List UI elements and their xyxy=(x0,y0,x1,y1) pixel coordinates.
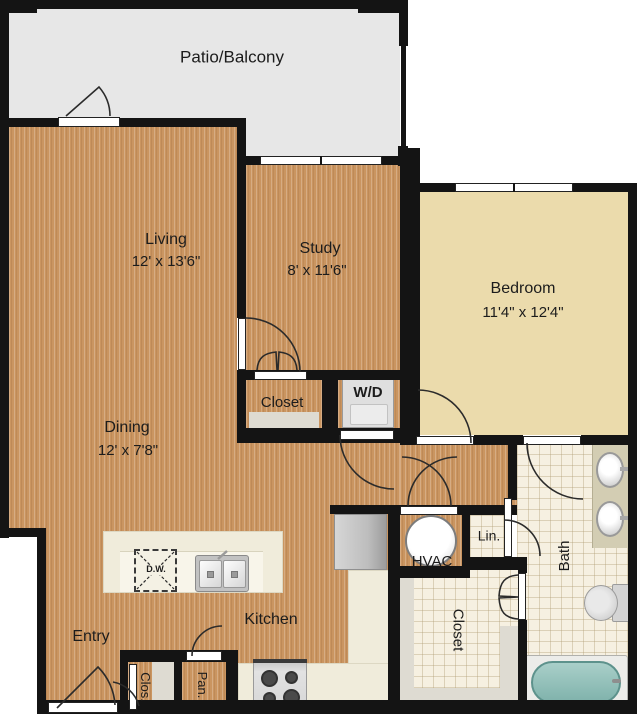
room-label-study-closet: Closet xyxy=(261,395,304,412)
room-label-kitchen: Kitchen xyxy=(244,611,297,629)
door-swing xyxy=(57,667,115,708)
room-label-linen: Lin. xyxy=(478,528,501,543)
room-dims-bedroom: 11'4" x 12'4" xyxy=(482,305,563,322)
bifold-door xyxy=(499,575,518,619)
kitchen-faucet xyxy=(218,551,227,559)
door-swing xyxy=(192,626,222,656)
label-dishwasher: D.W. xyxy=(145,565,167,575)
room-label-study: Study xyxy=(300,240,341,258)
room-dims-living: 12' x 13'6" xyxy=(132,254,201,271)
door-swing xyxy=(113,682,139,706)
label-washer-dryer: W/D xyxy=(353,385,382,402)
room-label-walkin-closet: Closet xyxy=(449,609,466,652)
room-label-entry: Entry xyxy=(72,628,109,646)
door-swings-overlay xyxy=(0,0,637,720)
room-dims-study: 8' x 11'6" xyxy=(287,263,346,280)
room-label-hvac: HVAC xyxy=(412,554,453,571)
room-label-living: Living xyxy=(145,231,187,249)
door-swing xyxy=(408,457,457,506)
room-dims-dining: 12' x 7'8" xyxy=(98,443,158,460)
room-label-bedroom: Bedroom xyxy=(491,280,556,298)
door-swing xyxy=(418,390,471,443)
door-swing xyxy=(66,87,110,116)
room-label-entry-closet: Clos. xyxy=(138,672,152,702)
floor-plan: Patio/Balcony Living 12' x 13'6" Study 8… xyxy=(0,0,637,720)
door-swing xyxy=(527,443,583,499)
room-label-pantry: Pan. xyxy=(195,672,209,699)
door-swing xyxy=(504,520,540,556)
room-label-dining: Dining xyxy=(104,419,149,437)
door-swing xyxy=(402,457,451,506)
room-label-patio: Patio/Balcony xyxy=(180,49,284,68)
bifold-door xyxy=(257,352,297,370)
room-label-bath: Bath xyxy=(557,541,574,572)
door-swing xyxy=(246,318,300,372)
door-swing xyxy=(340,435,394,489)
